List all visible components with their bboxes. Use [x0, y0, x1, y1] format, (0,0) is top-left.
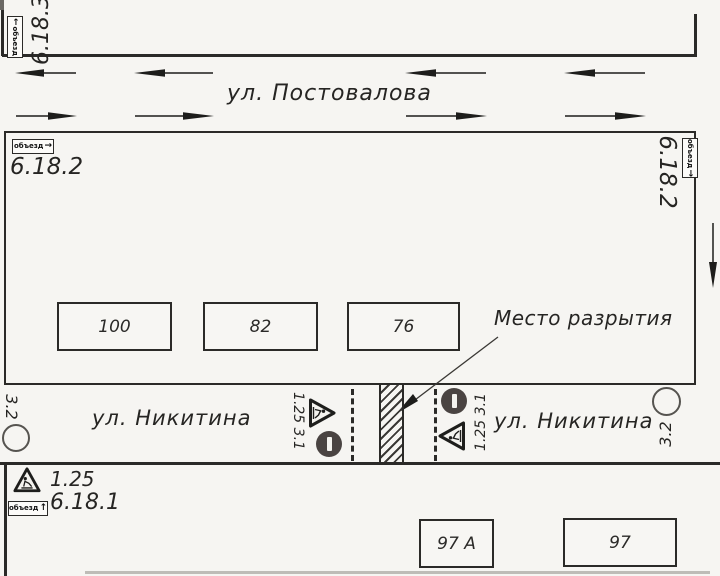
traffic-arrow-left-1	[14, 67, 78, 79]
traffic-arrow-right-4	[563, 110, 647, 122]
detour-arrow-icon: ←	[11, 18, 20, 26]
detour-arrow-icon: ↑	[39, 504, 47, 513]
roadworks-sign-legend	[13, 466, 41, 494]
building-number: 97 А	[437, 534, 476, 554]
detour-sign-text: объезд	[14, 143, 43, 150]
sign-codes-group-left: 1.25 3.1	[288, 385, 308, 457]
scan-smudge-corner	[0, 0, 4, 10]
building-82: 82	[203, 302, 318, 351]
street-name-postovalova: ул. Постовалова	[227, 83, 432, 105]
sign-code-6-18-2-left: 6.18.2	[10, 156, 83, 179]
sign-codes-group-right: 1.25 3.1	[471, 386, 491, 458]
detour-sign-6-18-2-right: объезд →	[682, 138, 698, 178]
traffic-arrow-left-4	[563, 67, 647, 79]
no-entry-sign-left	[316, 431, 342, 457]
top-block-bottom-edge	[2, 54, 697, 57]
scan-streak-bottom	[85, 571, 710, 574]
sign-code-6-18-3: 6.18.3	[29, 0, 55, 62]
excavation-label: Место разрытия	[494, 308, 673, 328]
building-100: 100	[57, 302, 172, 351]
building-number: 97	[609, 533, 631, 553]
detour-sign-6-18-2-left: объезд →	[12, 139, 54, 154]
detour-sign-text: объезд	[687, 139, 694, 168]
traffic-arrow-right-1	[14, 110, 78, 122]
traffic-arrow-left-2	[133, 67, 215, 79]
traffic-arrow-right-3	[404, 110, 488, 122]
top-block-right-edge	[694, 14, 697, 56]
sign-code-3-2-left: 3.2	[1, 391, 21, 423]
no-entry-bar	[327, 437, 332, 451]
no-movement-sign-left	[2, 424, 30, 452]
sign-code-6-18-1-legend: 6.18.1	[50, 492, 120, 514]
street-name-nikitina-left: ул. Никитина	[92, 408, 251, 429]
detour-sign-text: объезд	[12, 27, 19, 56]
detour-sign-text: объезд	[9, 505, 38, 512]
no-entry-sign-right	[441, 388, 467, 414]
roadworks-sign-left	[307, 398, 337, 428]
building-97a: 97 А	[419, 519, 494, 568]
detour-sign-6-18-3: ← объезд	[7, 16, 23, 58]
building-97: 97	[563, 518, 677, 567]
sign-code-1-25-legend: 1.25	[50, 469, 95, 489]
no-entry-bar	[452, 394, 457, 408]
building-number: 82	[250, 317, 272, 337]
street-bottom-edge	[0, 462, 720, 465]
detour-sign-6-18-1: объезд ↑	[8, 501, 48, 516]
barrier-dashed-left	[351, 389, 354, 461]
building-number: 100	[98, 317, 130, 337]
sign-code-6-18-2-right: 6.18.2	[652, 139, 682, 205]
detour-arrow-icon: →	[44, 142, 52, 151]
traffic-arrow-left-3	[404, 67, 488, 79]
excavation-area	[379, 385, 404, 464]
sign-code-3-2-right: 3.2	[656, 418, 676, 450]
street-name-nikitina-right: ул. Никитина	[494, 411, 653, 432]
traffic-arrow-down	[704, 222, 720, 290]
road-works-scheme: ← объезд 6.18.3 ул. Постовалова объезд →…	[0, 0, 720, 576]
bottom-block-left-edge	[4, 463, 7, 576]
detour-arrow-icon: →	[686, 169, 695, 177]
no-movement-sign-right	[652, 387, 681, 416]
traffic-arrow-right-2	[133, 110, 215, 122]
roadworks-sign-right	[437, 421, 467, 451]
